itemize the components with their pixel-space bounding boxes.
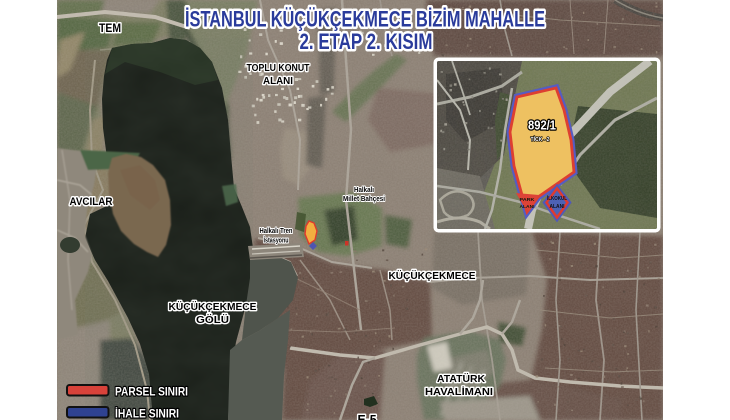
svg-text:PARSEL SINIRI: PARSEL SINIRI xyxy=(115,385,188,399)
svg-text:892/1: 892/1 xyxy=(528,118,556,133)
svg-text:2. ETAP 2. KISIM: 2. ETAP 2. KISIM xyxy=(300,29,433,54)
svg-text:İHALE SINIRI: İHALE SINIRI xyxy=(115,406,179,420)
svg-text:GÖLÜ: GÖLÜ xyxy=(196,313,229,326)
svg-text:İstasyonu: İstasyonu xyxy=(264,237,289,245)
svg-text:TOPLU KONUT: TOPLU KONUT xyxy=(247,63,310,74)
svg-text:ALANI: ALANI xyxy=(263,76,293,87)
svg-text:TEM: TEM xyxy=(99,23,121,35)
svg-text:Halkalı: Halkalı xyxy=(354,185,374,194)
svg-text:AVCILAR: AVCILAR xyxy=(70,196,113,208)
svg-text:HAVALİMANI: HAVALİMANI xyxy=(425,385,493,398)
svg-text:E-5: E-5 xyxy=(358,412,377,420)
svg-text:İLKOKUL: İLKOKUL xyxy=(547,195,567,202)
svg-text:ALANI: ALANI xyxy=(550,204,566,210)
svg-text:TİCK - 2: TİCK - 2 xyxy=(531,136,550,143)
svg-text:ATATÜRK: ATATÜRK xyxy=(437,372,485,385)
svg-text:KÜÇÜKÇEKMECE: KÜÇÜKÇEKMECE xyxy=(389,269,476,282)
svg-text:ALANI: ALANI xyxy=(520,204,536,210)
svg-text:İSTANBUL KÜÇÜKÇEKMECE BİZİM MA: İSTANBUL KÜÇÜKÇEKMECE BİZİM MAHALLE xyxy=(185,7,545,32)
svg-text:Halkalı Tren: Halkalı Tren xyxy=(260,228,293,235)
svg-text:KÜÇÜKÇEKMECE: KÜÇÜKÇEKMECE xyxy=(169,300,257,313)
svg-text:PARK: PARK xyxy=(520,197,536,203)
svg-text:Millet Bahçesi: Millet Bahçesi xyxy=(343,194,385,203)
